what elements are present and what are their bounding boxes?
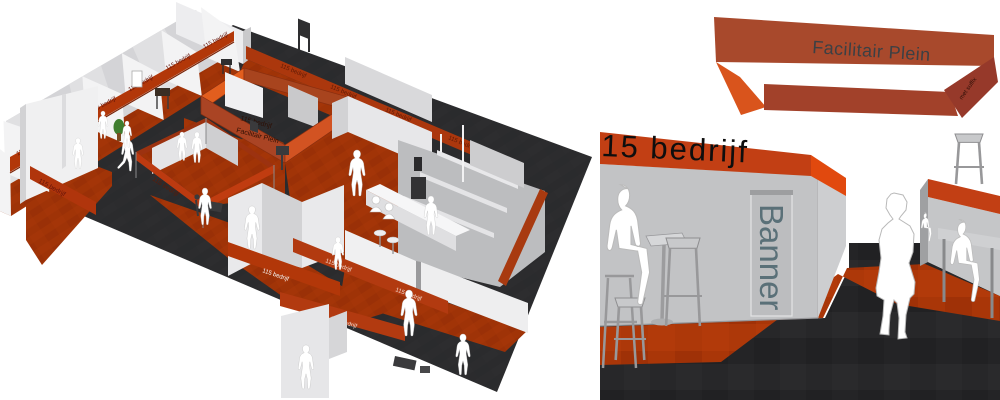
svg-text:15 bedrijf: 15 bedrijf: [601, 128, 750, 169]
svg-text:Banner: Banner: [753, 204, 790, 310]
